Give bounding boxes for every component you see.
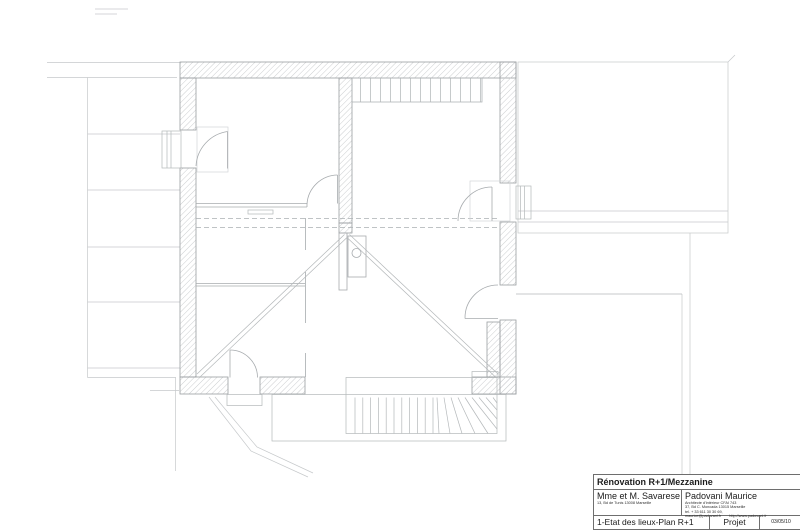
fold-marks xyxy=(95,9,128,14)
skylight-band xyxy=(352,78,482,102)
client-cell: Mme et M. Savarese 13, Bd de Tunis 13008… xyxy=(594,490,682,515)
client-address: 13, Bd de Tunis 13008 Marseille xyxy=(597,501,681,505)
bottom-door xyxy=(227,350,262,406)
central-partition-wall xyxy=(339,78,352,233)
neighbouring-building-left xyxy=(47,63,180,472)
drawing-title: 1-Etat des lieux-Plan R+1 xyxy=(594,516,710,529)
title-block-parties: Mme et M. Savarese 13, Bd de Tunis 13008… xyxy=(594,490,800,516)
right-window-bay xyxy=(458,181,531,221)
void-diagonals xyxy=(197,235,498,378)
drawing-date: 03/05/10 xyxy=(760,516,800,529)
title-block: Rénovation R+1/Mezzanine Mme et M. Savar… xyxy=(593,474,800,530)
client-name: Mme et M. Savarese xyxy=(597,491,681,501)
phase-label: Projet xyxy=(710,516,760,529)
right-door xyxy=(465,285,498,319)
upper-left-room-wall xyxy=(196,175,338,214)
roof-terrace xyxy=(516,55,735,474)
architect-name: Padovani Maurice xyxy=(685,491,800,501)
exterior-path xyxy=(209,397,313,477)
title-block-footer: 1-Etat des lieux-Plan R+1 Projet 03/05/1… xyxy=(594,516,800,530)
architect-cell: Padovani Maurice Architecte d'intérieur … xyxy=(682,490,800,515)
lower-left-room-wall xyxy=(196,284,305,287)
floor-plan-drawing xyxy=(0,0,800,530)
project-title: Rénovation R+1/Mezzanine xyxy=(594,475,800,490)
plan-sheet: Rénovation R+1/Mezzanine Mme et M. Savar… xyxy=(0,0,800,530)
exterior-stair xyxy=(272,372,506,442)
